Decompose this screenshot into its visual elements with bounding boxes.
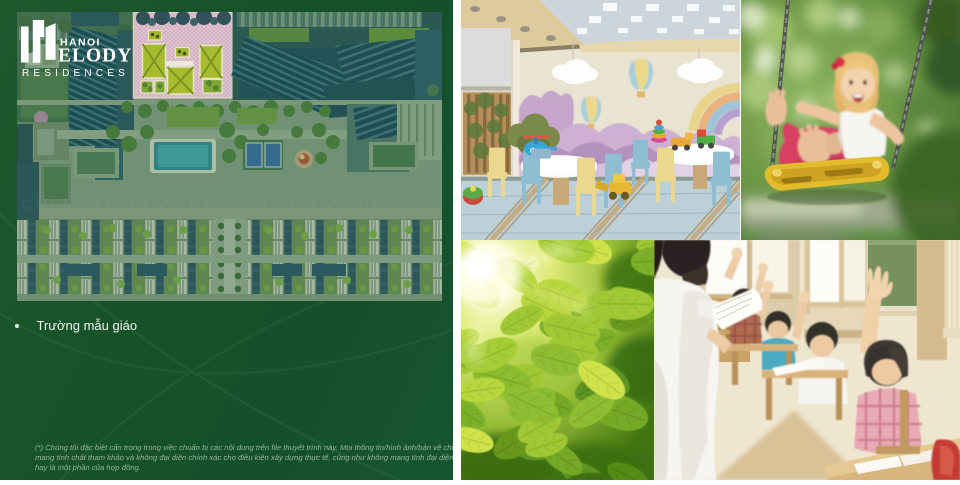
svg-text:ELODY: ELODY bbox=[58, 46, 132, 67]
svg-text:RESIDENCES: RESIDENCES bbox=[22, 68, 129, 79]
